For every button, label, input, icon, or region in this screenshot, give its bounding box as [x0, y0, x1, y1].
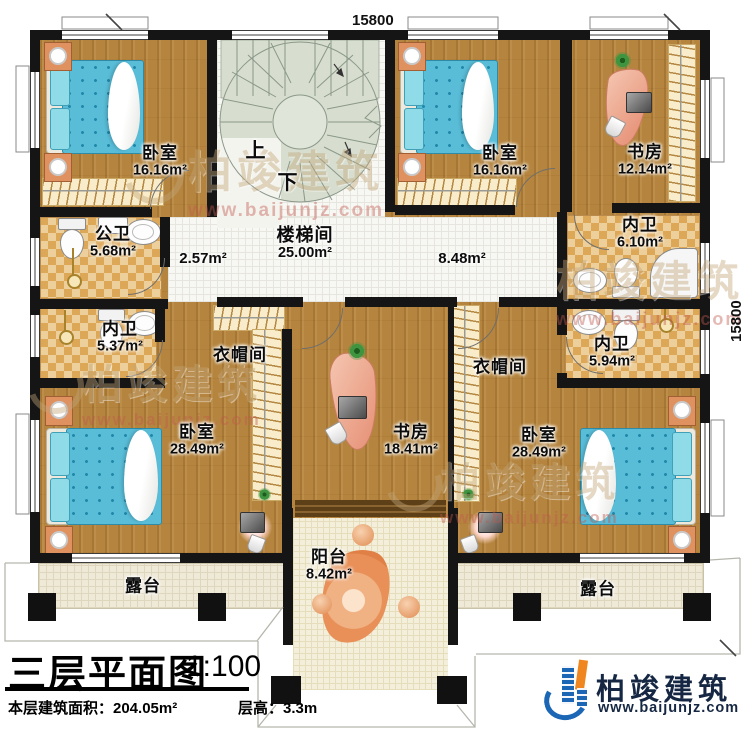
floor-area-text: 本层建筑面积：204.05m²	[8, 697, 177, 718]
stair-down-label: 下	[278, 172, 299, 194]
drawing-scale: 1:100	[186, 650, 261, 684]
title-underline	[5, 687, 249, 691]
room-label-bedroom-br: 卧室 28.49m²	[512, 427, 566, 462]
room-label-bedroom-tl: 卧室 16.16m²	[133, 145, 187, 180]
stair-up-label: 上	[246, 140, 267, 162]
plan-outline-lines	[0, 0, 750, 734]
corridor-right-area-label: 8.48m²	[438, 251, 486, 268]
dimension-top: 15800	[352, 12, 394, 29]
room-label-bath-inner-left: 内卫 5.37m²	[97, 321, 143, 356]
room-label-balcony: 阳台 8.42m²	[306, 549, 352, 584]
floor-height-text: 层高：3.3m	[238, 697, 317, 718]
room-label-closet-right: 衣帽间	[473, 359, 527, 378]
room-label-bath-inner-tr: 内卫 6.10m²	[617, 217, 663, 252]
logo-building-icon	[575, 660, 588, 691]
room-label-study-center: 书房 18.41m²	[384, 424, 438, 459]
room-label-terrace-right: 露台	[580, 581, 616, 600]
logo-company-url: www.baijunjz.com	[598, 700, 739, 716]
room-label-study-tr: 书房 12.14m²	[618, 144, 672, 179]
dimension-right: 15800	[728, 300, 745, 342]
room-label-terrace-left: 露台	[125, 578, 161, 597]
room-label-bedroom-tr: 卧室 16.16m²	[473, 145, 527, 180]
room-label-bedroom-bl: 卧室 28.49m²	[170, 424, 224, 459]
room-label-bath-inner-right: 内卫 5.94m²	[589, 336, 635, 371]
logo-building-icon	[562, 666, 574, 704]
floor-plan-canvas: 柏竣建筑 www.baijunjz.com 柏竣建筑 www.baijunjz.…	[0, 0, 750, 734]
room-label-closet-left: 衣帽间	[213, 347, 267, 366]
corridor-left-area-label: 2.57m²	[179, 251, 227, 268]
room-label-bath-public: 公卫 5.68m²	[90, 226, 136, 261]
logo-building-icon	[577, 688, 587, 706]
room-label-stairwell: 楼梯间 25.00m²	[277, 226, 334, 262]
